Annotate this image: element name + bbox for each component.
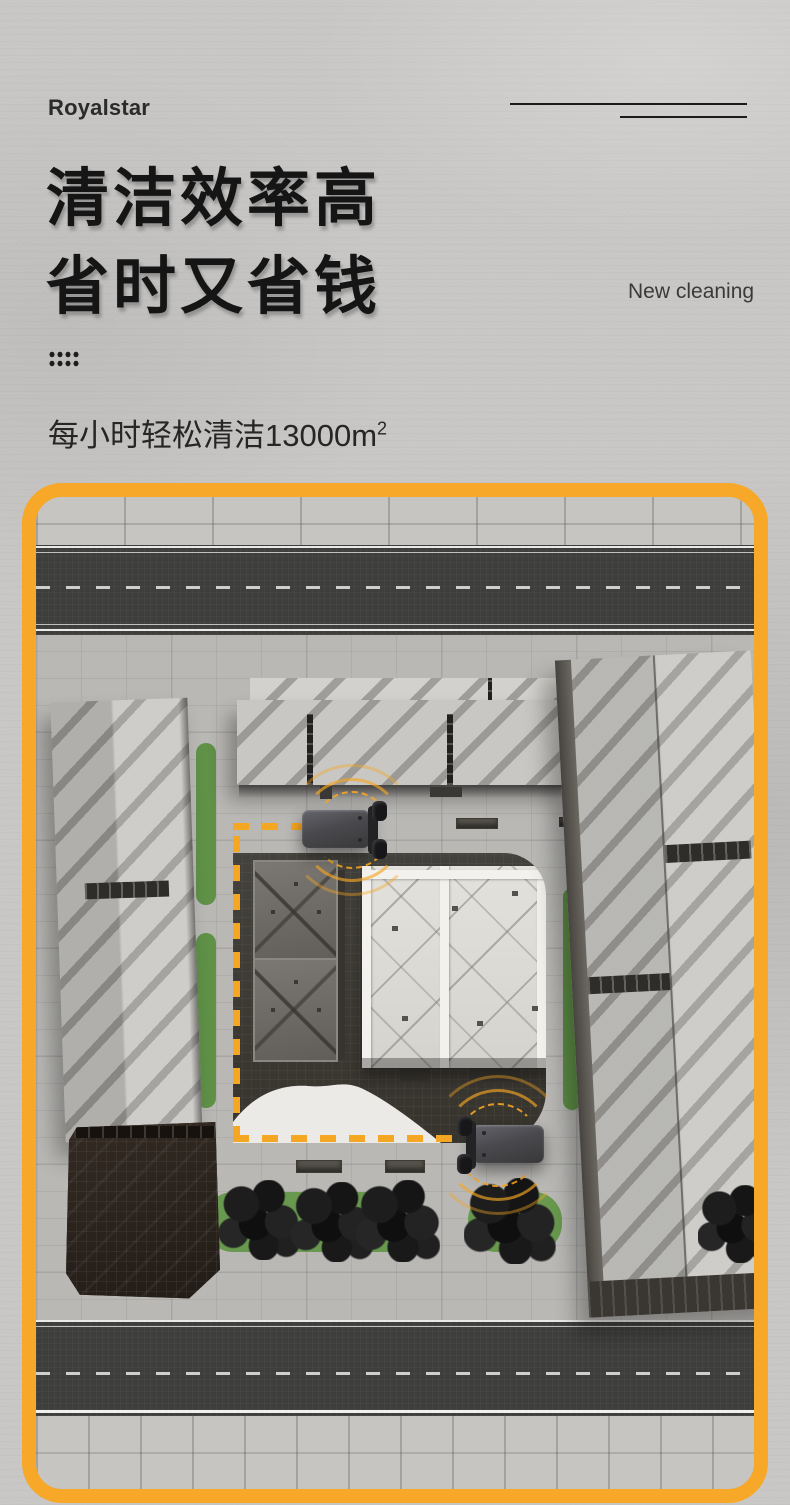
building-gap-slit	[447, 714, 453, 785]
robot-wheel	[457, 1154, 472, 1174]
white-building-beam	[362, 866, 371, 1068]
crate-knobs	[271, 1008, 275, 1012]
sweeper-robot-bottom	[444, 1115, 544, 1175]
white-building-bolts	[392, 926, 398, 931]
title-line-2: 省时又省钱	[46, 243, 381, 331]
building-dark-brown	[66, 1122, 220, 1302]
dots-grid-icon	[48, 350, 81, 368]
road-bottom	[36, 1320, 754, 1416]
robot-screws	[358, 816, 362, 820]
subtitle-superscript: 2	[377, 419, 387, 439]
subtitle: 每小时轻松清洁13000m2	[48, 410, 387, 455]
green-bar-left-upper	[196, 743, 216, 905]
white-building-beam	[440, 866, 449, 1068]
white-building	[362, 866, 546, 1068]
tree	[698, 1185, 754, 1263]
bench	[296, 1160, 342, 1173]
decor-line-short	[620, 116, 747, 118]
decor-line-long	[510, 103, 747, 105]
brand-logo: Royalstar	[48, 95, 150, 121]
road-top	[36, 545, 754, 635]
white-building-base-shadow	[362, 1058, 546, 1068]
tree	[219, 1180, 299, 1260]
crate-building-lower	[253, 958, 338, 1062]
coverage-illustration-frame	[22, 483, 768, 1503]
robot-wheel	[457, 1116, 472, 1136]
pavement-vent	[430, 787, 462, 797]
building-dark-brown-roofband	[74, 1126, 216, 1138]
pavement-strip-top	[36, 497, 754, 545]
page-title: 清洁效率高 省时又省钱	[46, 155, 381, 331]
robot-screws	[482, 1131, 486, 1135]
cleaning-path-bottom	[233, 1135, 456, 1142]
white-wave-paving	[233, 1072, 443, 1143]
tagline-text: New cleaning	[628, 280, 754, 304]
robot-wheel	[372, 839, 387, 859]
building-gap-slit	[307, 714, 313, 785]
building-gap-slit	[488, 678, 492, 702]
cleaning-path-left	[233, 823, 240, 1142]
building-left-tower	[50, 698, 202, 1143]
pavement-strip-bottom	[36, 1416, 754, 1489]
tree	[356, 1180, 440, 1262]
title-line-1: 清洁效率高	[46, 155, 381, 243]
robot-wheel	[372, 801, 387, 821]
promo-page: Royalstar 清洁效率高 省时又省钱 New cleaning 每小时轻松…	[0, 0, 790, 1505]
aerial-scene	[36, 497, 754, 1489]
bench	[385, 1160, 425, 1173]
subtitle-text: 每小时轻松清洁13000m	[48, 418, 377, 453]
building-top	[237, 700, 572, 785]
white-building-beam	[537, 866, 546, 1068]
bench	[456, 818, 498, 829]
sweeper-robot-top	[302, 800, 402, 860]
building-left-recess	[85, 881, 170, 900]
crate-knobs	[271, 910, 275, 914]
